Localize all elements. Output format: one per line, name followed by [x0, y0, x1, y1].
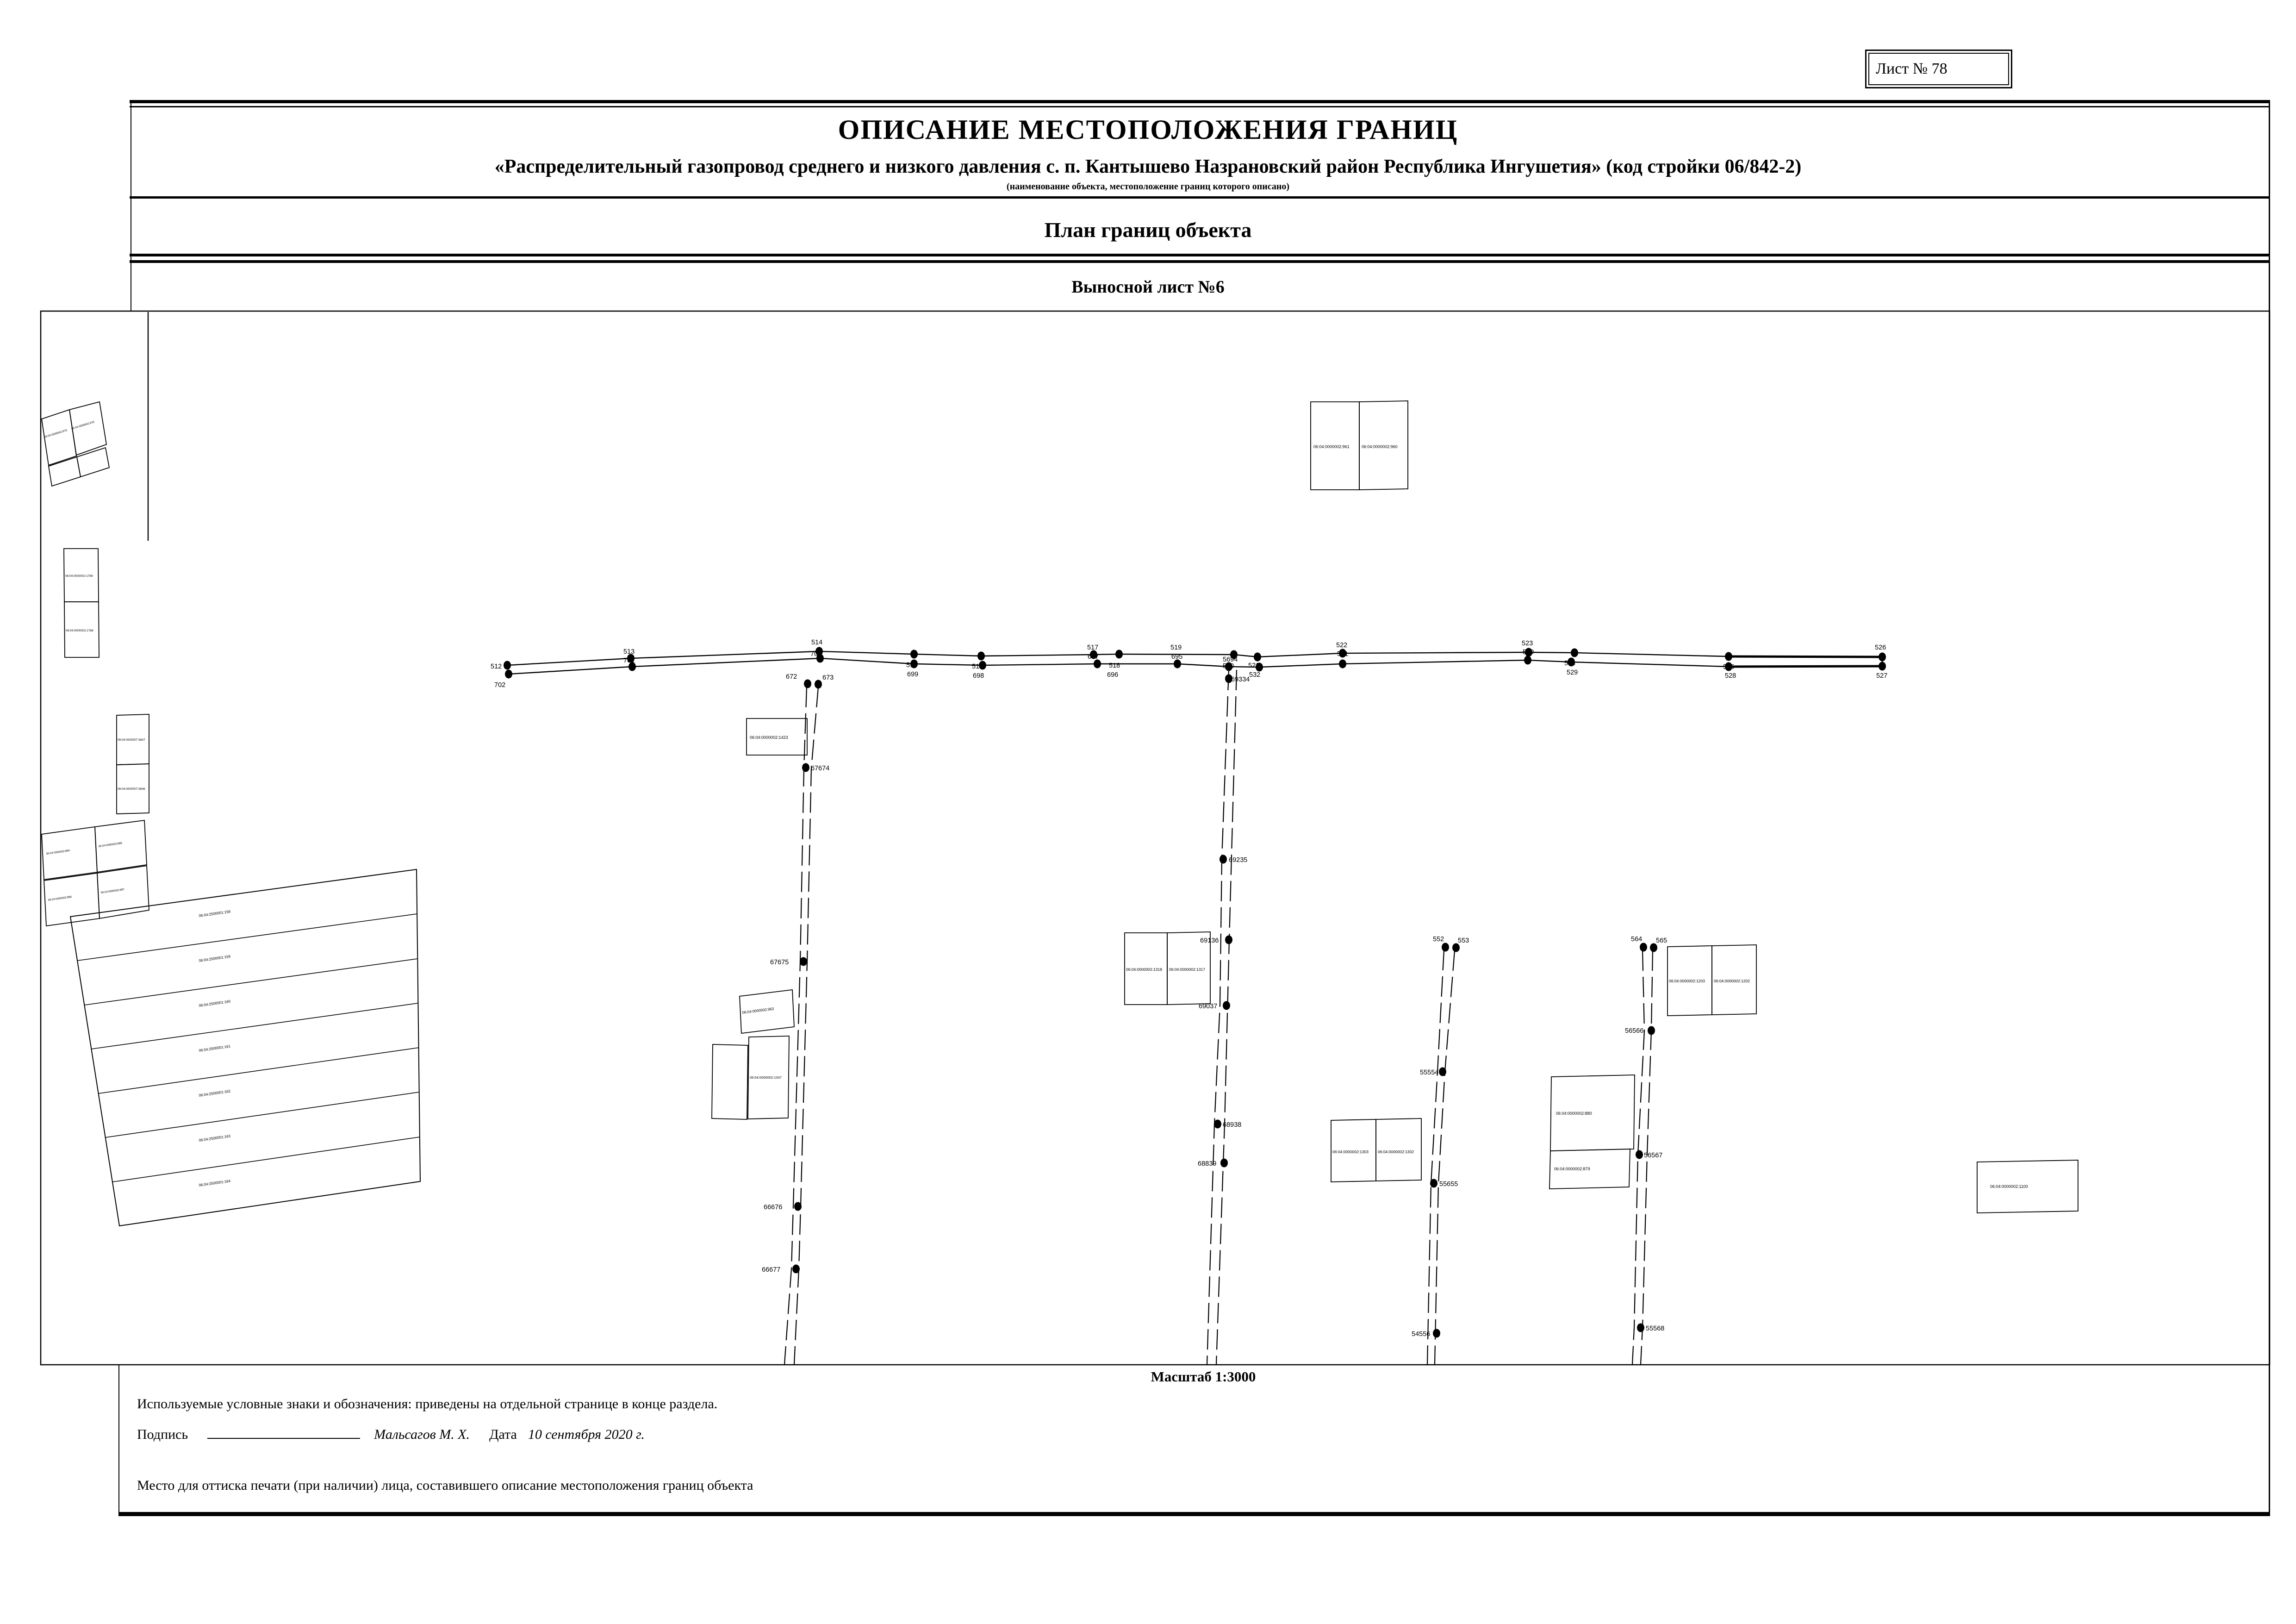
survey-point-label: 526 [1875, 644, 1886, 651]
survey-point-label: 530 [1523, 649, 1534, 656]
signature-row: ПодписьМальсагов М. Х.Дата10 сентября 20… [137, 1427, 645, 1443]
survey-point-label: 565 [1656, 937, 1667, 944]
survey-point-dot [910, 650, 918, 659]
date-value: 10 сентября 2020 г. [528, 1427, 645, 1442]
survey-point-dot [1094, 660, 1101, 668]
survey-point-label: 521 [1248, 662, 1259, 669]
strip-field-divider [91, 1003, 418, 1049]
survey-point-label: 698 [973, 672, 984, 680]
strip-field-divider [106, 1092, 419, 1137]
strip-field-divider [84, 959, 417, 1005]
survey-point-dot [505, 670, 512, 679]
survey-point-dot [815, 680, 822, 689]
survey-point-label: 520 [1223, 662, 1234, 670]
survey-point-dot [504, 661, 511, 670]
survey-point-label: 514 [811, 639, 822, 646]
parcel-outline [49, 457, 81, 486]
survey-point-label: 69136 [1200, 937, 1219, 944]
survey-point-dot [1452, 943, 1460, 952]
parcel-label: 06:04:0000002:1203 [1669, 979, 1705, 983]
survey-point-dot [1225, 936, 1232, 944]
survey-point-dot [1214, 1120, 1221, 1129]
pipeline-branch2-left [1207, 670, 1229, 1364]
date-label: Дата [489, 1427, 517, 1442]
survey-point-dot [1640, 943, 1647, 952]
survey-point-label: 69235 [1229, 856, 1247, 864]
survey-point-dot [1223, 1001, 1230, 1010]
survey-point-label: 673 [822, 674, 834, 681]
survey-point-dot [1174, 660, 1181, 668]
survey-point-label: 55655 [1439, 1181, 1458, 1188]
parcel-label: 06:04:0000002:1768 [66, 629, 93, 632]
survey-point-dot [792, 1265, 800, 1274]
parcel-label: 06:04:0000002:884 [46, 849, 70, 856]
strip-field-label: 06:04:2500001:162 [199, 1089, 231, 1098]
survey-point-label: 697 [1088, 653, 1099, 661]
survey-point-dot [802, 763, 809, 772]
survey-point-dot [1430, 1179, 1437, 1188]
strip-field-label: 06:04:2500001:159 [199, 954, 231, 963]
pipeline-branch1-left [784, 687, 807, 1364]
survey-point-dot [1637, 1324, 1644, 1332]
parcel-label: 06:04:0000002:1100 [1990, 1184, 2028, 1189]
survey-point-label: 516 [972, 663, 983, 670]
survey-point-label: 532 [1249, 671, 1260, 679]
pipeline-branch3-right [1435, 950, 1455, 1364]
parcel-label: 06:04:0000002:885 [98, 842, 123, 848]
parcel-outline [77, 448, 109, 477]
survey-point-dot [1220, 1159, 1228, 1168]
parcel-label: 06:04:0000002:1423 [750, 735, 788, 740]
parcel-label: 06:04:0000002:886 [48, 896, 72, 902]
survey-point-label: 529 [1567, 669, 1578, 676]
parcel-label: 06:04:0000002:963 [742, 1007, 774, 1015]
strip-field-label: 06:04:2500001:163 [199, 1134, 231, 1143]
strip-field-label: 06:04:2500001:160 [199, 999, 231, 1008]
survey-point-dot [800, 957, 807, 966]
survey-point-label: 67674 [811, 765, 829, 772]
parcel-label: 06:04:0000007:3647 [118, 738, 145, 742]
survey-point-label: 699 [907, 671, 918, 678]
survey-point-label: 69037 [1199, 1003, 1217, 1010]
survey-point-label: 66677 [762, 1266, 780, 1274]
survey-point-label: 513 [623, 648, 635, 656]
survey-point-dot [1879, 662, 1886, 671]
signature-name: Мальсагов М. Х. [374, 1427, 470, 1442]
survey-point-label: 553 [1458, 937, 1469, 944]
parcel-label: 06:04:0000002:887 [100, 888, 125, 894]
stamp-note: Место для оттиска печати (при наличии) л… [137, 1478, 753, 1493]
survey-point-label: 564 [1631, 936, 1642, 943]
survey-point-dot [794, 1202, 802, 1211]
legend-note: Используемые условные знаки и обозначени… [137, 1396, 717, 1412]
parcel-label: 06:04:0000002:961 [1313, 444, 1350, 449]
pipeline-main-top-end [1729, 656, 1882, 657]
strip-field-label: 06:04:2500001:158 [199, 909, 231, 918]
survey-point-label: 68938 [1223, 1121, 1241, 1129]
survey-point-label: 518 [1109, 662, 1120, 669]
survey-point-label: 696 [1107, 671, 1118, 679]
survey-point-label: 700 [810, 650, 821, 658]
survey-point-label: 66676 [764, 1204, 782, 1211]
parcel-label: 06:04:0000002:879 [1554, 1167, 1590, 1171]
survey-point-dot [1879, 653, 1886, 662]
survey-point-dot [804, 680, 811, 688]
parcel-label: 06:04:0000002:1202 [1714, 979, 1750, 983]
strip-field-divider [77, 914, 417, 961]
strip-field-label: 06:04:2500001:164 [199, 1179, 231, 1187]
parcel-label: 06:04:0000002:880 [1556, 1111, 1592, 1116]
parcel-label: 06:04:0000002:960 [1362, 444, 1398, 449]
survey-point-dot [1636, 1150, 1643, 1159]
map-scale-label: Масштаб 1:3000 [1018, 1368, 1388, 1385]
parcel-label: 06:04:0000007:3646 [118, 787, 145, 791]
parcel-label: 06:04:0000002:1303 [1332, 1149, 1369, 1154]
parcel-label: 06:04:0000002:1302 [1378, 1149, 1414, 1154]
survey-point-dot [977, 652, 985, 661]
strip-field-outline [70, 869, 420, 1226]
survey-point-label: 523 [1522, 640, 1533, 647]
strip-field-divider [112, 1137, 420, 1182]
survey-point-label: 56566 [1625, 1027, 1643, 1035]
parcel-label: 06:04:0000002:1318 [1126, 967, 1162, 972]
survey-point-label: 522 [1336, 642, 1347, 649]
survey-point-dot [1648, 1026, 1655, 1035]
survey-point-label: 672 [786, 673, 797, 681]
survey-point-label: 55568 [1646, 1325, 1664, 1332]
pipeline-main-bottom-end [1729, 666, 1882, 667]
survey-point-dot [1433, 1329, 1440, 1338]
survey-point-dot [1650, 943, 1657, 952]
survey-point-dot [1339, 660, 1346, 668]
parcel-outline [712, 1044, 748, 1119]
survey-point-label: 524 [1564, 660, 1575, 667]
survey-point-label: 69334 [1231, 676, 1250, 683]
survey-point-label: 515 [906, 662, 917, 669]
survey-point-label: 56567 [1644, 1152, 1662, 1159]
survey-point-dot [1725, 652, 1732, 661]
survey-point-label: 528 [1725, 672, 1736, 680]
survey-point-dot [1442, 943, 1449, 952]
survey-point-label: 701 [623, 657, 635, 664]
survey-point-label: 527 [1876, 672, 1887, 680]
parcel-label: 06:04:0000002:875 [44, 429, 68, 439]
parcel-label: 06:04:0000002:1317 [1169, 967, 1205, 972]
survey-point-label: 519 [1170, 644, 1182, 651]
signature-blank-line [207, 1427, 360, 1439]
survey-point-label: 702 [494, 681, 505, 689]
survey-point-label: 552 [1433, 936, 1444, 943]
survey-point-label: 695 [1171, 653, 1182, 661]
survey-point-label: 55554 [1420, 1069, 1438, 1076]
parcel-label: 06:04:0000002:876 [71, 421, 95, 431]
strip-field-divider [99, 1048, 419, 1093]
survey-point-dot [1571, 649, 1578, 657]
survey-point-dot [1254, 653, 1261, 662]
survey-point-dot [1524, 656, 1531, 665]
survey-point-label: 68839 [1198, 1160, 1216, 1168]
survey-point-label: 512 [491, 663, 502, 670]
parcel-label: 06:04:0000002:1769 [65, 575, 93, 578]
survey-point-dot [1439, 1068, 1446, 1076]
survey-point-label: 525 [1723, 663, 1734, 671]
survey-point-label: 531 [1337, 650, 1348, 658]
signature-label: Подпись [137, 1427, 188, 1442]
document-page: Лист № 78 ОПИСАНИЕ МЕСТОПОЛОЖЕНИЯ ГРАНИЦ… [0, 0, 2296, 1624]
survey-point-dot [1115, 650, 1123, 659]
parcel-label: 06:04:0000002:1337 [750, 1075, 782, 1080]
survey-point-dot [1220, 855, 1227, 864]
survey-point-label: 517 [1087, 644, 1098, 651]
survey-point-label: 67675 [770, 959, 789, 966]
survey-point-label: 54556 [1412, 1330, 1430, 1338]
strip-field-label: 06:04:2500001:161 [199, 1044, 231, 1053]
pipeline-branch1-right [794, 687, 818, 1364]
map-frame [41, 311, 2270, 1365]
